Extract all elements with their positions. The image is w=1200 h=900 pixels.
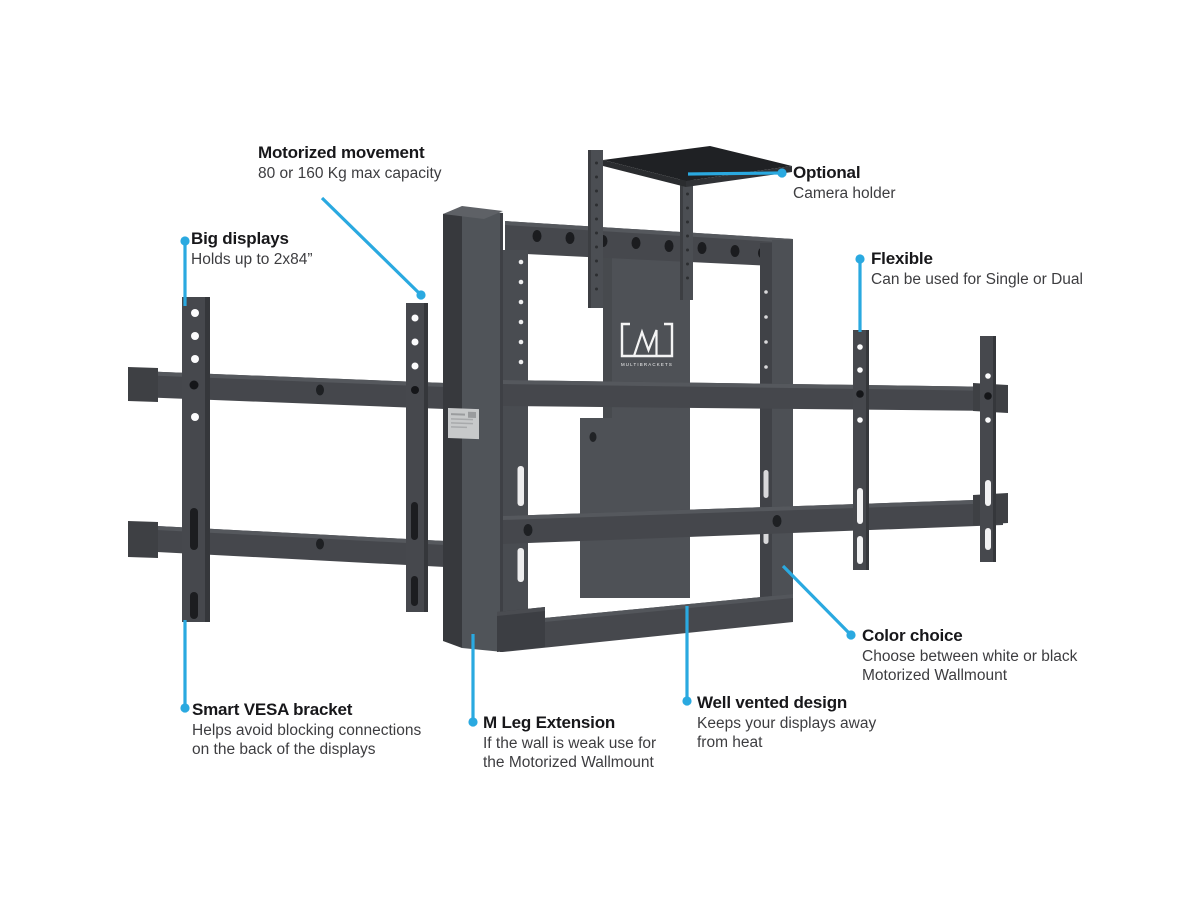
camera-holder-platform	[603, 146, 792, 187]
frame-left-post	[503, 250, 528, 618]
brand-logo-text: MULTIBRACKETS	[621, 362, 673, 367]
rail-lower-left	[128, 521, 445, 567]
camera-holder-post-left	[588, 150, 603, 308]
rail-upper-right	[503, 380, 1008, 413]
callout-motorized-movement: Motorized movement 80 or 160 Kg max capa…	[258, 143, 442, 183]
callout-text: 80 or 160 Kg max capacity	[258, 164, 442, 183]
callout-text: Can be used for Single or Dual	[871, 270, 1083, 289]
callout-m-leg-extension: M Leg Extension If the wall is weak use …	[483, 713, 656, 772]
tv-rails	[128, 367, 1008, 567]
callout-title: M Leg Extension	[483, 713, 656, 732]
rail-lower-right	[503, 493, 1008, 544]
rail-upper-left	[128, 367, 445, 409]
vesa-bracket-right-inner	[853, 330, 869, 570]
callout-text: the Motorized Wallmount	[483, 753, 656, 772]
callout-line-motorized-movement	[322, 198, 426, 300]
callout-color-choice: Color choice Choose between white or bla…	[862, 626, 1077, 685]
callout-text: If the wall is weak use for	[483, 734, 656, 753]
callout-text: Keeps your displays away	[697, 714, 876, 733]
callout-title: Well vented design	[697, 693, 876, 712]
callout-flexible: Flexible Can be used for Single or Dual	[871, 249, 1083, 289]
callout-optional: Optional Camera holder	[793, 163, 896, 203]
callout-text: Helps avoid blocking connections	[192, 721, 421, 740]
callout-title: Smart VESA bracket	[192, 700, 421, 719]
frame-right-post	[760, 240, 793, 612]
callout-title: Color choice	[862, 626, 1077, 645]
callout-smart-vesa-bracket: Smart VESA bracket Helps avoid blocking …	[192, 700, 421, 759]
callout-title: Big displays	[191, 229, 313, 248]
callout-text: on the back of the displays	[192, 740, 421, 759]
callout-big-displays: Big displays Holds up to 2x84”	[191, 229, 313, 269]
callout-line-flexible	[855, 254, 864, 332]
frame-bottom-rail	[503, 594, 793, 652]
callout-line-smart-vesa	[180, 620, 189, 713]
callout-well-vented-design: Well vented design Keeps your displays a…	[697, 693, 876, 752]
product-diagram: MULTIBRACKETS	[0, 0, 1200, 900]
vesa-bracket-left-inner	[406, 303, 428, 612]
vesa-bracket-left-outer	[182, 297, 210, 622]
callout-text: Camera holder	[793, 184, 896, 203]
motorized-column	[443, 206, 545, 652]
callout-line-color-choice	[783, 566, 856, 640]
callout-text: Choose between white or black	[862, 647, 1077, 666]
callout-text: Holds up to 2x84”	[191, 250, 313, 269]
callout-text: Motorized Wallmount	[862, 666, 1077, 685]
vesa-bracket-right-outer	[980, 336, 996, 562]
callout-title: Motorized movement	[258, 143, 442, 162]
callout-text: from heat	[697, 733, 876, 752]
ce-label	[448, 408, 479, 439]
callout-title: Flexible	[871, 249, 1083, 268]
m-leg-foot	[497, 607, 545, 652]
callout-title: Optional	[793, 163, 896, 182]
callout-line-big-displays	[180, 236, 189, 306]
